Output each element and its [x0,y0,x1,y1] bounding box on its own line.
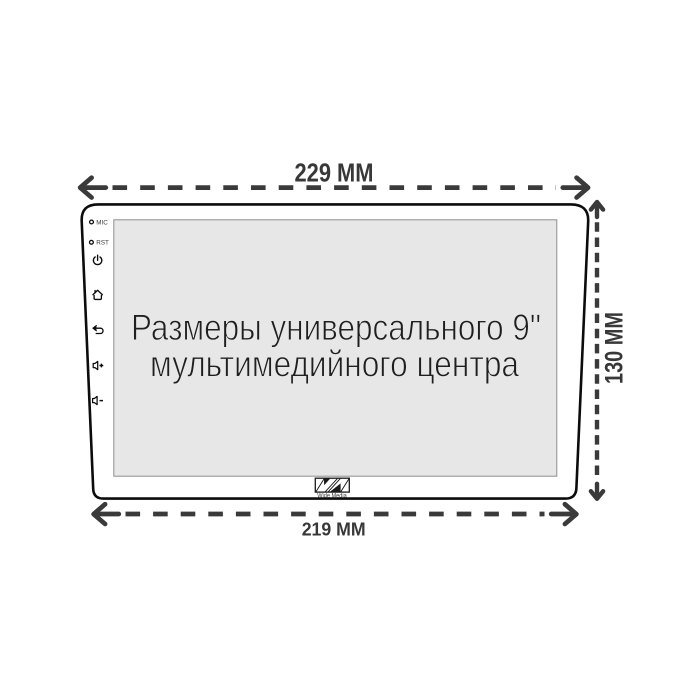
svg-text:219 ММ: 219 ММ [302,519,366,540]
svg-text:MIC: MIC [96,219,108,226]
svg-text:130 ММ: 130 ММ [601,312,629,384]
svg-text:RST: RST [96,240,109,247]
svg-text:229 ММ: 229 ММ [295,158,374,188]
svg-text:Размеры универсального 9": Размеры универсального 9" [131,307,541,348]
svg-text:Wide Media: Wide Media [317,494,347,500]
svg-text:мультимедийного центра: мультимедийного центра [150,343,519,384]
